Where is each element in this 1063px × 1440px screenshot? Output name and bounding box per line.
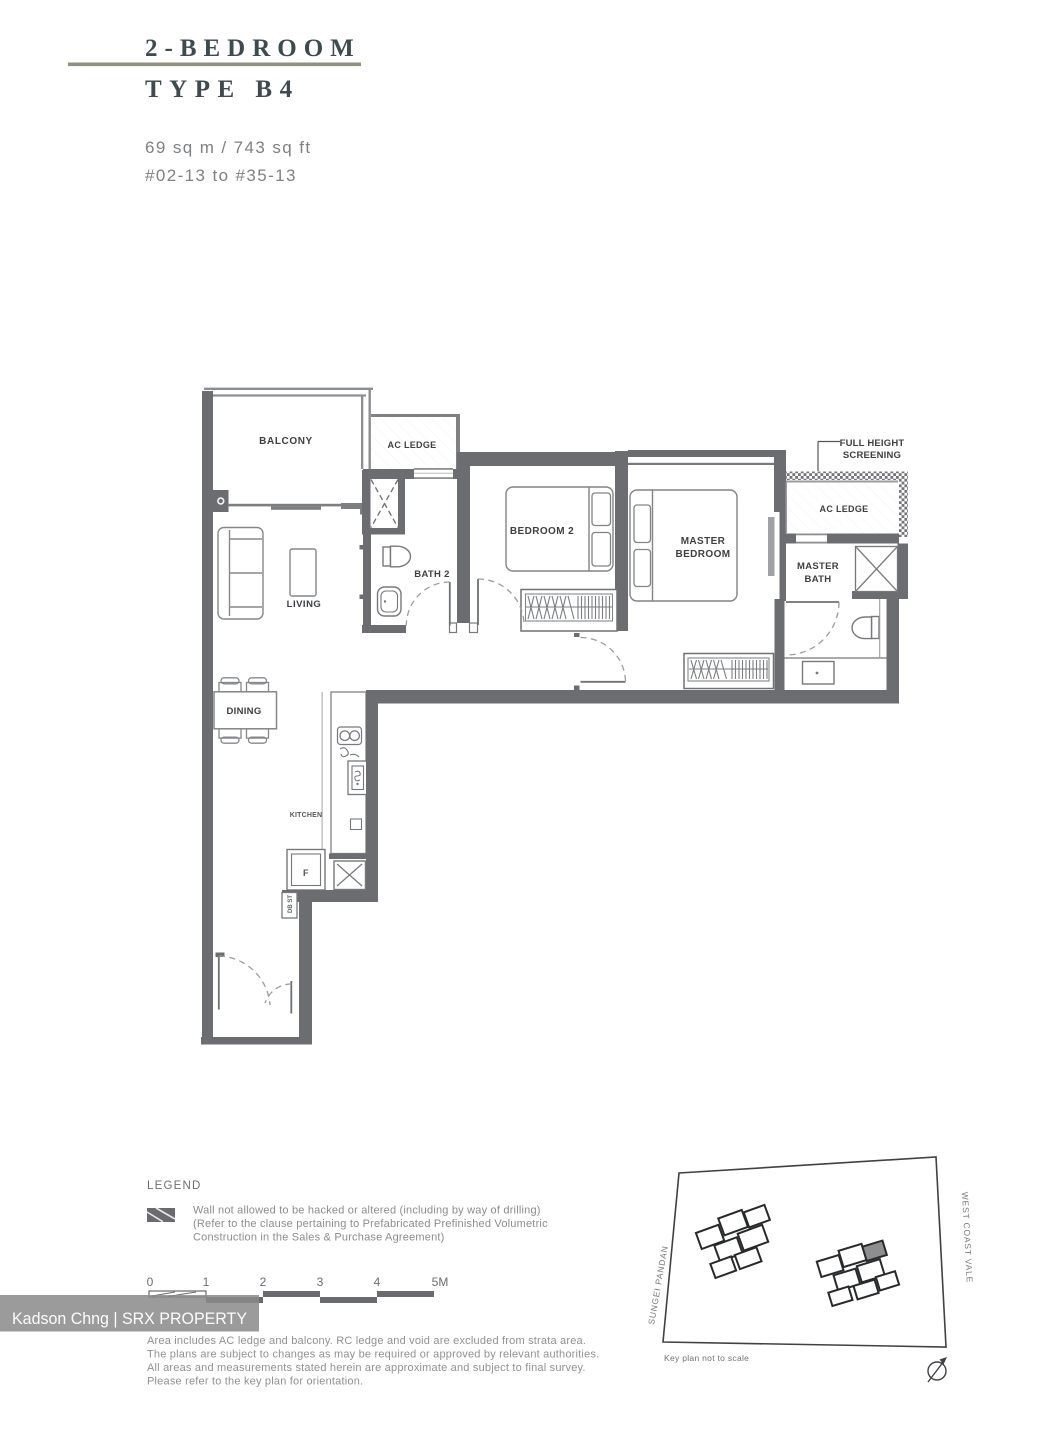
svg-text:TYPE B4: TYPE B4 — [145, 76, 300, 103]
svg-text:69 sq m / 743 sq ft: 69 sq m / 743 sq ft — [145, 138, 311, 157]
svg-text:Kadson Chng | SRX PROPERTY: Kadson Chng | SRX PROPERTY — [12, 1309, 247, 1328]
svg-text:DINING: DINING — [226, 706, 261, 717]
svg-text:LEGEND: LEGEND — [147, 1180, 202, 1192]
svg-text:3: 3 — [317, 1275, 324, 1289]
svg-text:AC LEDGE: AC LEDGE — [388, 440, 437, 450]
svg-text:0: 0 — [147, 1275, 154, 1289]
svg-text:(Refer to the clause pertainin: (Refer to the clause pertaining to Prefa… — [193, 1218, 548, 1230]
svg-text:Key plan not to scale: Key plan not to scale — [664, 1353, 749, 1363]
svg-text:2-BEDROOM: 2-BEDROOM — [145, 35, 361, 62]
svg-text:Wall not allowed to be hacked: Wall not allowed to be hacked or altered… — [193, 1205, 541, 1217]
svg-text:1: 1 — [203, 1275, 210, 1289]
svg-text:F: F — [303, 868, 309, 878]
svg-text:The plans are subject to chang: The plans are subject to changes as may … — [147, 1349, 599, 1361]
svg-text:MASTER: MASTER — [681, 536, 726, 547]
svg-text:LIVING: LIVING — [287, 599, 322, 610]
svg-text:All areas and measurements sta: All areas and measurements stated herein… — [147, 1362, 586, 1374]
svg-text:BATH: BATH — [805, 574, 832, 585]
svg-text:MASTER: MASTER — [797, 561, 839, 572]
svg-text:4: 4 — [374, 1275, 381, 1289]
svg-text:BATH 2: BATH 2 — [414, 569, 449, 580]
svg-text:AC LEDGE: AC LEDGE — [820, 504, 869, 514]
svg-text:2: 2 — [260, 1275, 267, 1289]
svg-text:5M: 5M — [432, 1275, 449, 1289]
svg-text:DB ST: DB ST — [288, 895, 294, 913]
svg-text:KITCHEN: KITCHEN — [290, 812, 323, 819]
svg-text:BALCONY: BALCONY — [259, 436, 313, 447]
svg-text:Area includes AC ledge and bal: Area includes AC ledge and balcony. RC l… — [147, 1335, 586, 1347]
svg-text:Please refer to the key plan f: Please refer to the key plan for orienta… — [147, 1376, 363, 1388]
svg-text:SCREENING: SCREENING — [843, 450, 901, 461]
svg-text:#02-13 to #35-13: #02-13 to #35-13 — [145, 166, 297, 185]
svg-text:BEDROOM 2: BEDROOM 2 — [510, 526, 574, 537]
svg-text:FULL HEIGHT: FULL HEIGHT — [840, 438, 905, 449]
svg-text:BEDROOM: BEDROOM — [675, 549, 730, 560]
svg-text:Construction in the Sales & Pu: Construction in the Sales & Purchase Agr… — [193, 1232, 445, 1244]
